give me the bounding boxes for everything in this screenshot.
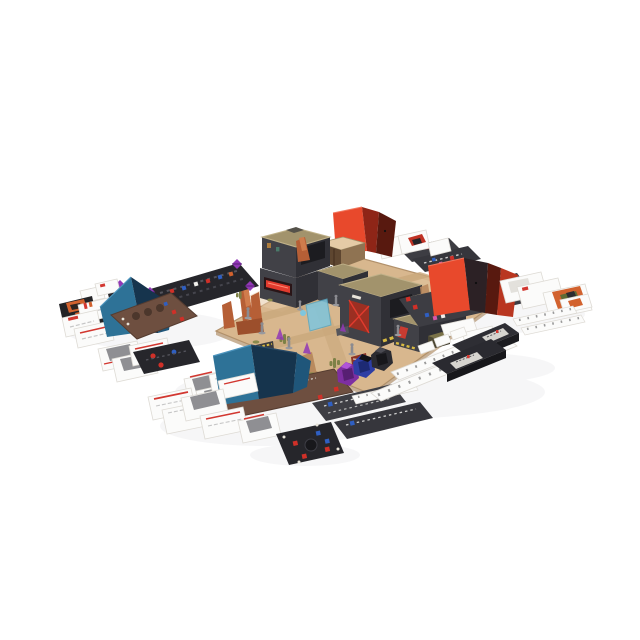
cyan-token [300,310,306,316]
scene-svg [0,0,640,640]
product-photo [0,0,640,640]
holo-barrier [306,299,331,331]
